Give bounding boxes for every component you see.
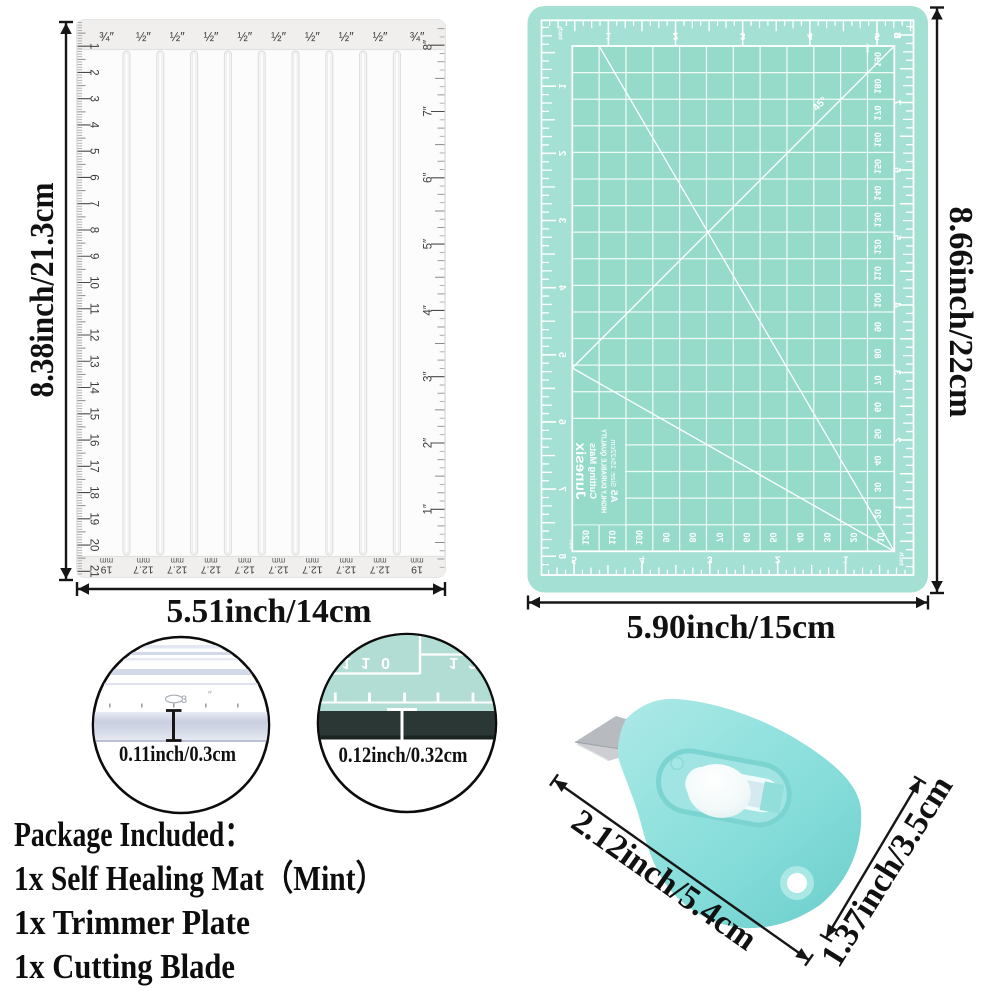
svg-text:mm: mm — [136, 556, 150, 565]
svg-text:2: 2 — [673, 30, 679, 41]
svg-text:4″: 4″ — [423, 305, 435, 315]
svg-text:15: 15 — [87, 407, 99, 420]
svg-text:8″: 8″ — [423, 40, 435, 50]
svg-text:5″: 5″ — [423, 239, 435, 249]
svg-text:17: 17 — [87, 460, 99, 473]
svg-text:inch: inch — [898, 552, 905, 565]
svg-text:5: 5 — [874, 30, 880, 41]
svg-text:180: 180 — [872, 79, 882, 94]
svg-text:4: 4 — [891, 302, 902, 308]
svg-text:120: 120 — [580, 530, 590, 545]
svg-text:20: 20 — [87, 539, 99, 552]
svg-text:6″: 6″ — [423, 173, 435, 183]
svg-text:110: 110 — [607, 530, 617, 545]
svg-text:mm: mm — [373, 556, 387, 565]
svg-text:150: 150 — [872, 159, 882, 174]
svg-text:18: 18 — [87, 486, 99, 499]
svg-text:160: 160 — [872, 132, 882, 147]
svg-text:10: 10 — [875, 532, 885, 542]
svg-text:5: 5 — [556, 352, 567, 358]
svg-text:13: 13 — [87, 355, 99, 368]
svg-text:19: 19 — [87, 512, 99, 525]
svg-text:70: 70 — [714, 532, 724, 542]
svg-text:½″: ½″ — [339, 30, 354, 44]
svg-text:1: 1 — [556, 83, 567, 89]
svg-text:14: 14 — [87, 381, 99, 394]
svg-text:3: 3 — [181, 694, 187, 706]
svg-text:½″: ½″ — [237, 30, 252, 44]
svg-text:5: 5 — [87, 148, 99, 154]
svg-text:mm: mm — [170, 556, 184, 565]
svg-text:½″: ½″ — [204, 30, 219, 44]
svg-text:30: 30 — [822, 532, 832, 542]
svg-text:8: 8 — [87, 227, 99, 233]
svg-text:3: 3 — [891, 369, 902, 375]
svg-text:1x Self Healing Mat（Mint）: 1x Self Healing Mat（Mint） — [14, 859, 385, 898]
svg-text:50: 50 — [768, 532, 778, 542]
svg-text:120: 120 — [872, 239, 882, 254]
svg-text:HIGHLY DURABLE QUALITY: HIGHLY DURABLE QUALITY — [599, 429, 606, 513]
svg-text:8: 8 — [891, 33, 902, 39]
svg-text:7″: 7″ — [423, 106, 435, 116]
svg-text:6: 6 — [891, 167, 902, 173]
svg-text:mm: mm — [204, 556, 218, 565]
svg-text:30: 30 — [872, 482, 882, 492]
svg-text:9: 9 — [87, 253, 99, 259]
svg-text:mm: mm — [305, 556, 319, 565]
svg-text:mm: mm — [410, 556, 424, 565]
svg-text:3: 3 — [707, 554, 713, 565]
svg-text:140: 140 — [872, 186, 882, 201]
svg-text:Junesix: Junesix — [573, 442, 588, 500]
svg-text:mm: mm — [272, 556, 286, 565]
svg-text:8.38inch/21.3cm: 8.38inch/21.3cm — [24, 183, 61, 398]
svg-text:190: 190 — [872, 52, 882, 67]
svg-text:2: 2 — [775, 554, 781, 565]
svg-text:6: 6 — [87, 174, 99, 180]
svg-text:5.51inch/14cm: 5.51inch/14cm — [167, 593, 372, 630]
svg-text:70: 70 — [872, 375, 882, 385]
svg-text:100: 100 — [634, 530, 644, 545]
svg-text:mm: mm — [568, 539, 574, 549]
svg-text:½″: ½″ — [136, 30, 151, 44]
svg-text:80: 80 — [872, 349, 882, 359]
svg-text:2: 2 — [891, 437, 902, 443]
svg-text:½″: ½″ — [305, 30, 320, 44]
svg-text:11: 11 — [87, 303, 99, 315]
svg-text:3: 3 — [556, 217, 567, 223]
svg-text:Cutting Mats: Cutting Mats — [587, 443, 598, 499]
svg-text:1″: 1″ — [423, 504, 435, 514]
svg-text:7: 7 — [891, 99, 902, 105]
svg-text:mm: mm — [100, 556, 114, 565]
svg-text:3: 3 — [740, 30, 746, 41]
svg-text:mm: mm — [339, 556, 353, 565]
svg-text:2: 2 — [556, 150, 567, 156]
svg-text:5: 5 — [891, 234, 902, 240]
svg-text:130: 130 — [872, 212, 882, 227]
svg-text:12: 12 — [87, 329, 99, 342]
svg-text:½″: ½″ — [373, 30, 388, 44]
svg-text:mm: mm — [238, 556, 252, 565]
svg-text:2: 2 — [87, 69, 99, 75]
svg-text:¾″: ¾″ — [99, 30, 114, 44]
svg-text:5: 5 — [571, 554, 577, 565]
svg-text:inch: inch — [557, 26, 564, 39]
svg-text:40: 40 — [872, 456, 882, 466]
svg-text:0.12inch/0.32cm: 0.12inch/0.32cm — [339, 742, 468, 767]
svg-text:8: 8 — [556, 553, 567, 559]
svg-text:mm: mm — [864, 43, 870, 53]
svg-text:8.66inch/22cm: 8.66inch/22cm — [942, 207, 979, 418]
svg-text:80: 80 — [688, 532, 698, 542]
svg-text:20: 20 — [849, 532, 859, 542]
svg-text:′′: ′′ — [208, 690, 212, 701]
svg-text:3″: 3″ — [423, 371, 435, 381]
svg-text:110: 110 — [872, 266, 882, 281]
svg-text:½″: ½″ — [170, 30, 185, 44]
svg-text:4: 4 — [556, 284, 567, 290]
svg-text:4: 4 — [87, 122, 99, 129]
svg-text:90: 90 — [661, 532, 671, 542]
svg-text:21: 21 — [87, 565, 99, 578]
svg-text:20: 20 — [872, 509, 882, 519]
svg-text:4: 4 — [639, 554, 645, 565]
svg-text:Package Included：: Package Included： — [14, 815, 252, 854]
svg-text:6: 6 — [556, 419, 567, 425]
svg-text:7: 7 — [87, 200, 99, 206]
svg-text:60: 60 — [741, 532, 751, 542]
svg-text:1x Trimmer Plate: 1x Trimmer Plate — [14, 903, 250, 942]
svg-text:100: 100 — [872, 293, 882, 308]
svg-text:16: 16 — [87, 434, 99, 447]
svg-text:1x Cutting Blade: 1x Cutting Blade — [14, 947, 235, 986]
svg-text:40: 40 — [795, 532, 805, 542]
svg-text:4: 4 — [807, 30, 813, 41]
svg-text:1: 1 — [843, 554, 849, 565]
svg-text:90: 90 — [872, 322, 882, 332]
svg-text:0.11inch/0.3cm: 0.11inch/0.3cm — [119, 741, 236, 766]
svg-text:50: 50 — [872, 429, 882, 439]
svg-text:½″: ½″ — [271, 30, 286, 44]
svg-text:2″: 2″ — [423, 438, 435, 448]
svg-text:3: 3 — [87, 95, 99, 101]
svg-text:1: 1 — [606, 30, 612, 41]
svg-text:7: 7 — [556, 486, 567, 492]
svg-text:170: 170 — [872, 105, 882, 120]
svg-text:60: 60 — [872, 402, 882, 412]
svg-text:1: 1 — [891, 504, 902, 510]
svg-text:1: 1 — [87, 43, 99, 49]
svg-text:10: 10 — [87, 276, 99, 289]
svg-text:5.90inch/15cm: 5.90inch/15cm — [627, 609, 836, 646]
